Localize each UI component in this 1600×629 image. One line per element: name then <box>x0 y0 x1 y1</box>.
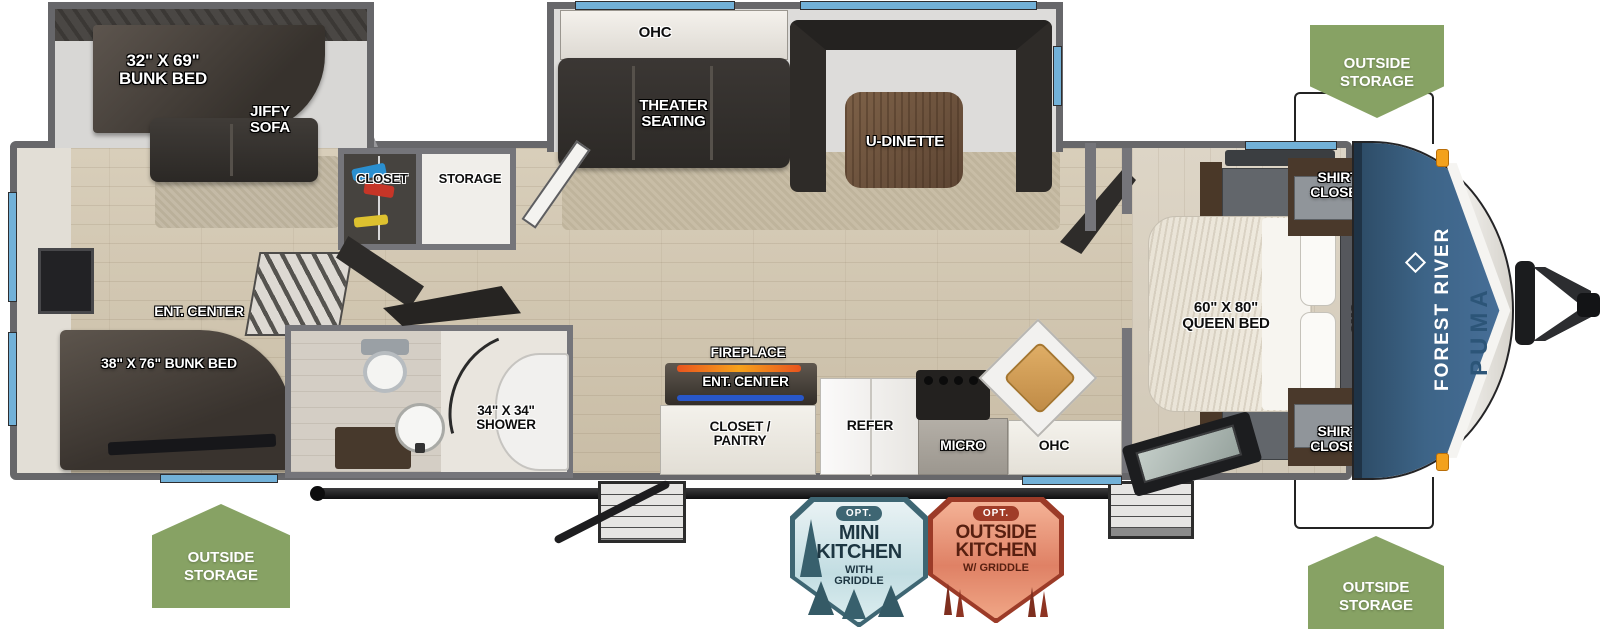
shower-label: 34" X 34" SHOWER <box>450 404 562 433</box>
window <box>8 332 17 426</box>
micro-label: MICRO <box>926 438 1000 453</box>
u-dinette-label: U-DINETTE <box>845 134 965 150</box>
cap-dark-edge <box>1354 143 1362 478</box>
outside-storage-text: OUTSIDE STORAGE <box>184 549 258 583</box>
front-cap: FOREST RIVER PUMA <box>1352 141 1514 480</box>
burner <box>954 376 963 385</box>
fireplace-flame-strip <box>677 365 801 372</box>
burner <box>969 376 978 385</box>
mini-kitchen-title: MINI KITCHEN <box>816 524 901 562</box>
kitchen-bedroom-wall-stub <box>1085 143 1096 231</box>
window <box>160 474 278 483</box>
bedroom-wall-upper <box>1122 148 1132 214</box>
step-tread <box>1111 506 1191 517</box>
queen-bed-label: 60" X 80" QUEEN BED <box>1165 300 1287 332</box>
closet-compartment <box>344 154 416 244</box>
bunk-slide-bed-label: 32" X 69" BUNK BED <box>78 52 248 88</box>
window <box>1245 141 1337 150</box>
front-storage-outline-bottom <box>1294 477 1434 529</box>
bunk-stairs <box>245 252 354 336</box>
bunk-mat <box>108 434 276 456</box>
toilet-bowl <box>363 351 407 393</box>
pillow-bottom <box>1300 312 1336 396</box>
mini-kitchen-subtitle: WITH GRIDDLE <box>834 565 884 587</box>
step-tread <box>601 528 683 539</box>
storage-label: STORAGE <box>424 172 516 186</box>
nightstand-top <box>1222 168 1292 218</box>
led-light-strip <box>677 395 804 401</box>
clearance-light-bottom <box>1436 453 1449 471</box>
closet-label: CLOSET <box>342 172 422 186</box>
step-tread <box>1111 517 1191 528</box>
step-tread <box>1111 495 1191 506</box>
mini-kitchen-badge: OPT. MINI KITCHEN WITH GRIDDLE <box>790 497 928 627</box>
closet-storage-room <box>338 148 516 250</box>
window <box>1053 46 1062 106</box>
outside-storage-badge-bottom-right: OUTSIDE STORAGE <box>1308 536 1444 629</box>
step-tread <box>601 517 683 528</box>
clearance-light-top <box>1436 149 1449 167</box>
brand-model: PUMA <box>1466 251 1492 411</box>
awning-end-cap <box>310 486 325 501</box>
bath-faucet <box>415 443 425 453</box>
kitchen-ent-center-label: ENT. CENTER <box>678 375 813 389</box>
opt-pill: OPT. <box>836 506 882 521</box>
closet-storage-divider <box>416 154 422 244</box>
wood-post-top <box>1200 162 1222 216</box>
outside-kitchen-subtitle: W/ GRIDDLE <box>963 563 1029 574</box>
rear-bunk-bed-label: 38" X 76" BUNK BED <box>86 356 252 371</box>
hanging-shirt-yellow <box>354 214 389 227</box>
burner <box>939 376 948 385</box>
outside-storage-badge-bottom-left: OUTSIDE STORAGE <box>152 504 290 608</box>
hitch-a-frame <box>1505 235 1600 375</box>
theater-seating-label: THEATER SEATING <box>616 98 731 130</box>
brand-manufacturer: FOREST RIVER <box>1432 181 1456 437</box>
window <box>1022 476 1122 485</box>
rear-ent-center-label: ENT. CENTER <box>140 304 258 319</box>
outside-kitchen-title: OUTSIDE KITCHEN <box>956 524 1037 560</box>
rear-tv <box>38 248 94 314</box>
outside-storage-text: OUTSIDE STORAGE <box>1340 55 1414 89</box>
floorplan-canvas: 32" X 69" BUNK BED JIFFY SOFA OHC THEATE… <box>0 0 1600 629</box>
outside-storage-text: OUTSIDE STORAGE <box>1339 579 1413 613</box>
rear-bunk-bed-38x76 <box>60 330 292 470</box>
burner <box>924 376 933 385</box>
closet-pantry-label: CLOSET / PANTRY <box>690 420 790 449</box>
refer-label: REFER <box>830 418 910 433</box>
kitchen-ohc-label: OHC <box>1022 438 1086 453</box>
outside-kitchen-badge: OPT. OUTSIDE KITCHEN W/ GRIDDLE <box>928 497 1064 623</box>
jiffy-sofa-label: JIFFY SOFA <box>228 104 312 136</box>
window <box>8 192 17 302</box>
opt-pill: OPT. <box>973 506 1019 521</box>
window <box>575 1 735 10</box>
window <box>800 1 1037 10</box>
fireplace-label: FIREPLACE <box>695 346 801 360</box>
bathroom <box>285 325 573 478</box>
ohc-label: OHC <box>600 25 710 41</box>
